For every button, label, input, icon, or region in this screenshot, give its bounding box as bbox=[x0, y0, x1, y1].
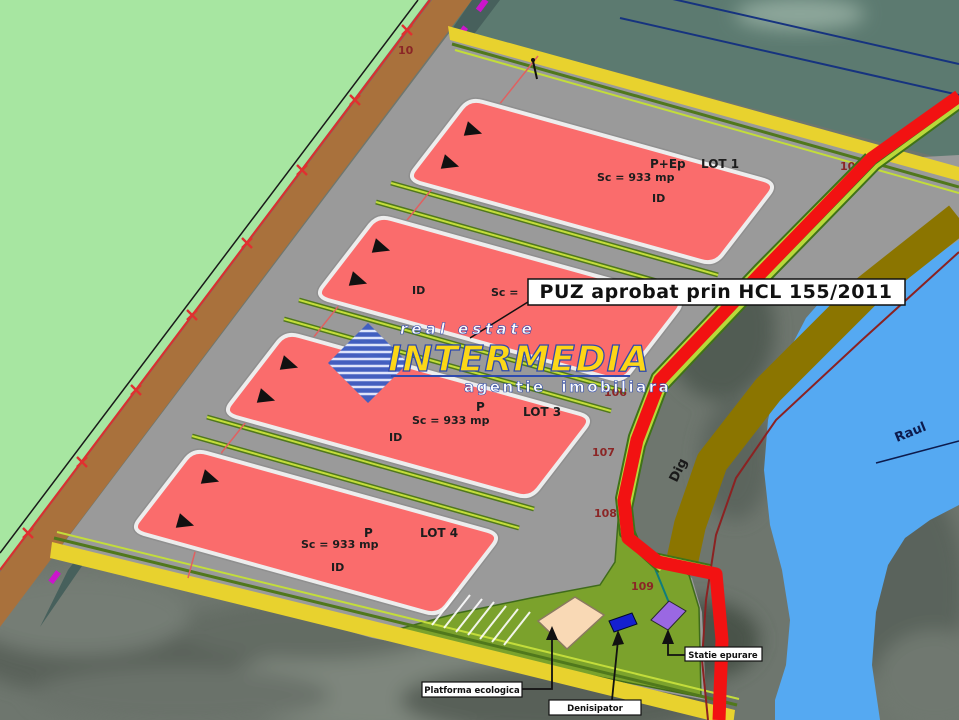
lot4-name: LOT 4 bbox=[420, 526, 458, 540]
lot3-id: ID bbox=[389, 431, 402, 444]
site-plan-image: P+Ep LOT 1 Sc = 933 mp ID ID Sc = P LOT … bbox=[0, 0, 959, 720]
lot2-id: ID bbox=[412, 284, 425, 297]
lot3-regime: P bbox=[476, 400, 485, 414]
survey-107: 107 bbox=[592, 446, 615, 459]
site-plan-svg: P+Ep LOT 1 Sc = 933 mp ID ID Sc = P LOT … bbox=[0, 0, 959, 720]
lot3-name: LOT 3 bbox=[523, 405, 561, 419]
lot2-area-partial: Sc = bbox=[491, 286, 519, 299]
lot3-area: Sc = 933 mp bbox=[412, 414, 490, 427]
callout-sand-trap-text: Denisipator bbox=[567, 704, 623, 714]
title-box-text: PUZ aprobat prin HCL 155/2011 bbox=[540, 281, 893, 303]
watermark-top-text: real estate bbox=[400, 320, 536, 338]
lot1-id: ID bbox=[652, 192, 665, 205]
lot4-area: Sc = 933 mp bbox=[301, 538, 379, 551]
watermark-bottom-text: agentie imobiliara bbox=[464, 378, 671, 396]
lot4-id: ID bbox=[331, 561, 344, 574]
survey-109: 109 bbox=[631, 580, 654, 593]
survey-10: 10 bbox=[398, 44, 414, 57]
survey-108: 108 bbox=[594, 507, 617, 520]
title-box: PUZ aprobat prin HCL 155/2011 bbox=[528, 279, 905, 305]
lot1-name: LOT 1 bbox=[701, 157, 739, 171]
callout-platform-text: Platforma ecologica bbox=[424, 686, 520, 696]
callout-treatment-text: Statie epurare bbox=[688, 651, 758, 661]
lot1-area: Sc = 933 mp bbox=[597, 171, 675, 184]
watermark-brand-text: INTERMEDIA bbox=[388, 339, 650, 380]
lot1-regime: P+Ep bbox=[650, 157, 686, 171]
